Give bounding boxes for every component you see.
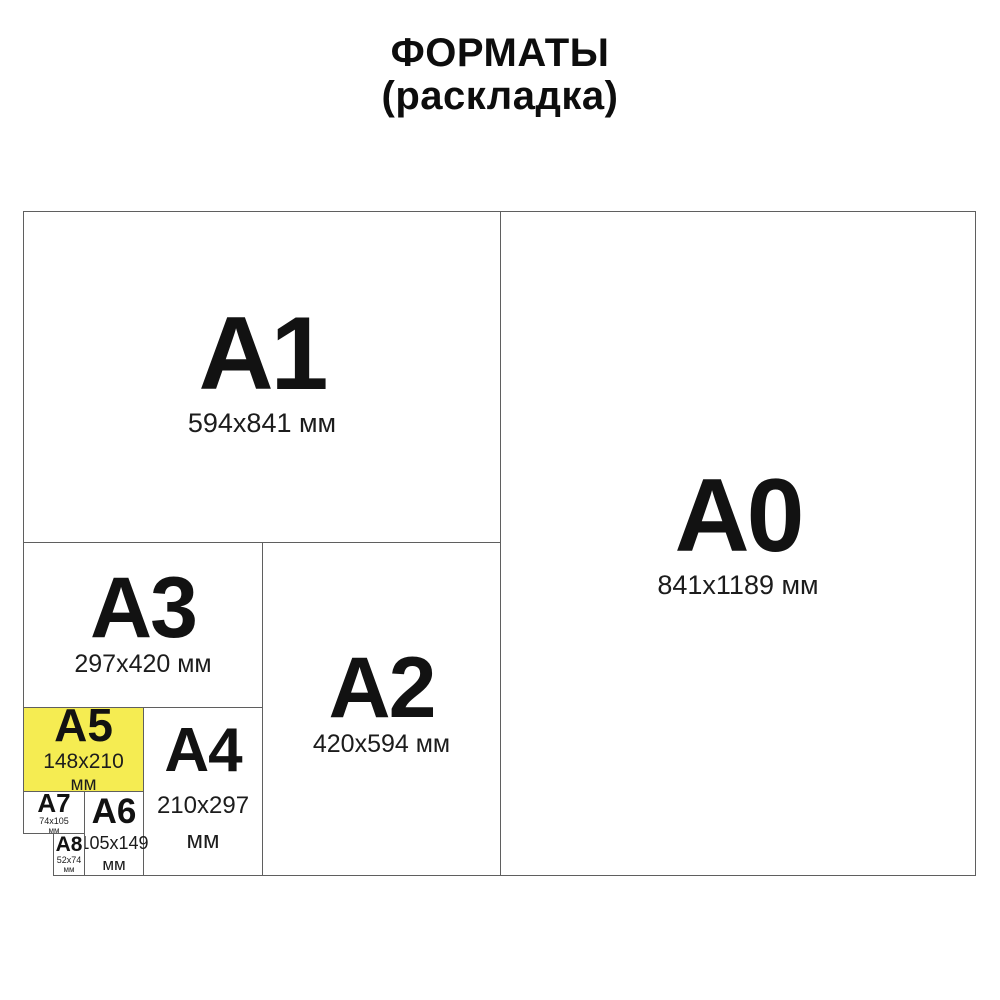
format-box-a7: A7 74x105 мм (23, 791, 85, 834)
format-box-a4: A4 210x297 мм (143, 707, 263, 876)
format-size-a7: 74x105 (39, 816, 69, 826)
format-box-a1: A1 594x841 мм (23, 211, 501, 543)
format-unit-a8: мм (64, 866, 75, 874)
format-box-a2: A2 420x594 мм (262, 542, 501, 876)
format-size-a6: 105x149 (79, 832, 148, 854)
format-label-a3: A3 (90, 564, 196, 652)
format-label-a5: A5 (54, 702, 113, 748)
format-unit-a4: мм (187, 827, 220, 855)
format-label-a1: A1 (199, 302, 326, 406)
format-box-a0: A0 841x1189 мм (500, 211, 976, 876)
format-size-a4: 210x297 (157, 791, 249, 821)
format-label-a2: A2 (329, 644, 435, 732)
format-label-a8: A8 (56, 835, 83, 855)
title-line-1: ФОРМАТЫ (0, 32, 1000, 75)
title-line-2: (раскладка) (0, 75, 1000, 118)
format-unit-a6: мм (102, 856, 125, 874)
format-size-a0: 841x1189 мм (657, 570, 818, 600)
format-size-a5: 148x210 (43, 750, 124, 774)
page-title: ФОРМАТЫ (раскладка) (0, 32, 1000, 118)
format-label-a0: A0 (675, 464, 802, 568)
format-size-a8: 52x74 (57, 855, 82, 865)
format-box-a3: A3 297x420 мм (23, 542, 263, 708)
format-box-a8: A8 52x74 мм (53, 833, 85, 876)
format-size-a2: 420x594 мм (313, 730, 450, 758)
format-box-a5-highlighted: A5 148x210 мм (23, 707, 144, 792)
format-label-a6: A6 (92, 794, 137, 830)
format-label-a4: A4 (164, 719, 241, 783)
format-label-a7: A7 (37, 791, 70, 815)
format-size-a3: 297x420 мм (74, 650, 211, 678)
format-size-a1: 594x841 мм (188, 408, 336, 438)
format-box-a6: A6 105x149 мм (84, 791, 144, 876)
paper-formats-infographic: ФОРМАТЫ (раскладка) A1 594x841 мм A0 841… (0, 0, 1000, 1000)
